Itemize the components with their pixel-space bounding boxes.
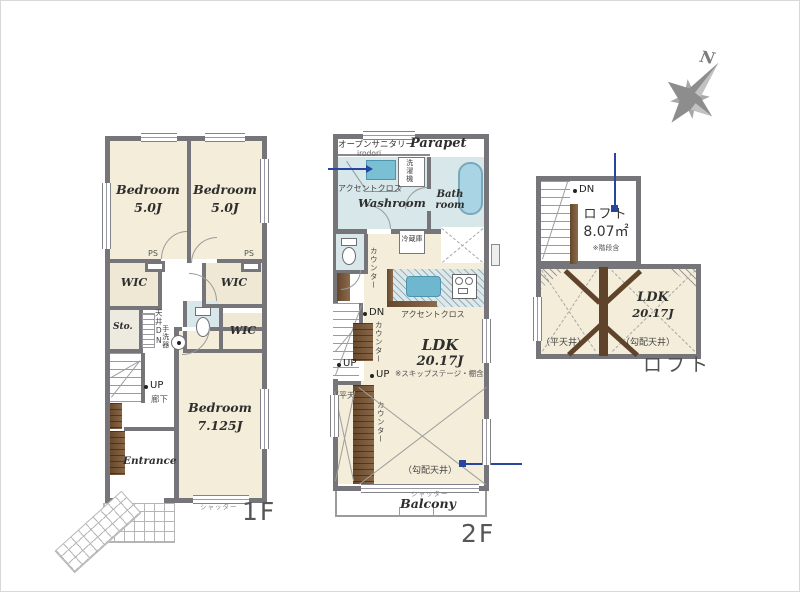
stairs-dn-label: DN <box>579 184 594 195</box>
flat-ceiling-label: （平天井） <box>541 339 586 349</box>
pipe-shaft-slot <box>148 264 162 269</box>
stairs-up-dot <box>337 363 341 367</box>
compass: N <box>643 37 743 145</box>
stairs-up-label: UP <box>343 358 356 369</box>
toilet-icon <box>342 247 356 265</box>
wic-right-lower-label: WIC <box>225 325 261 337</box>
shoe-cabinet <box>110 431 125 475</box>
hand-basin-drain <box>177 341 181 345</box>
stove-burner <box>455 277 463 285</box>
skip-stage-note: ※スキップステージ・棚含 <box>395 370 484 378</box>
annotation-dot <box>611 205 618 212</box>
wall <box>202 304 267 308</box>
kitchen-sink-icon <box>406 276 441 297</box>
bedroom-3-label: Bedroom <box>187 401 253 415</box>
pipe-shaft-slot <box>244 264 258 269</box>
ps-left-label: PS <box>148 250 158 259</box>
stair-up-dot <box>144 385 148 389</box>
loft-room-label: ロフト <box>578 208 634 222</box>
balcony-label: Balcony <box>399 497 457 511</box>
sloped-ceiling-label: （勾配天井） <box>403 467 457 477</box>
door-gap <box>427 189 431 211</box>
wood-step <box>110 403 122 429</box>
washroom-label: Washroom <box>358 197 426 210</box>
window <box>205 133 245 142</box>
toilet-icon <box>341 238 357 246</box>
counter-mid <box>353 323 373 361</box>
loft-area-label: 8.07㎡ <box>578 225 634 240</box>
wic-right-upper-label: WIC <box>213 277 255 289</box>
wall <box>338 154 430 156</box>
bedroom-3-size: 7.125J <box>187 419 253 433</box>
annotation-line <box>466 463 522 465</box>
washing-machine-label: 洗濯機 <box>405 159 413 186</box>
loft-ldk-size: 20.17J <box>627 307 679 320</box>
floorplan-sheet: Bedroom 5.0J Bedroom 5.0J PS PS WIC WIC … <box>0 0 800 592</box>
stage-up-label: UP <box>376 369 389 380</box>
floor-label-loft: ロフト <box>643 355 712 376</box>
hallway-label: 廊下 <box>151 396 168 405</box>
stairs-dn-dot <box>573 189 577 193</box>
wall <box>364 234 368 274</box>
annotation-dot <box>459 460 466 467</box>
window <box>260 159 269 223</box>
bedroom-1-size: 5.0J <box>113 201 183 215</box>
annotation-line <box>328 168 366 170</box>
bathroom-label: Bath room <box>432 189 468 211</box>
bedroom-1-label: Bedroom <box>113 183 183 197</box>
loft-note-label: ※階段含 <box>584 245 628 253</box>
stove-grill <box>458 288 468 294</box>
stairs-up-label: UP <box>150 380 163 391</box>
beam-post <box>599 267 608 356</box>
storage-label: Sto. <box>113 323 133 333</box>
ps-right-label: PS <box>244 250 254 259</box>
compass-rose-icon <box>643 37 743 145</box>
loft-ldk-label: LDK <box>629 291 677 305</box>
stairs-dn-dot <box>363 312 367 316</box>
parapet-label: Parapet <box>410 137 467 151</box>
accent-cloth-kitchen-label: アクセントクロス <box>401 311 465 320</box>
annotation-arrowhead <box>366 165 373 173</box>
stairs-dn-label: DN <box>369 307 384 318</box>
north-label: N <box>699 48 716 68</box>
window <box>141 133 177 142</box>
window <box>102 183 111 249</box>
counter-lower-label: カウンター <box>376 401 384 451</box>
wall <box>141 353 145 403</box>
sloped-ceiling-label: （勾配天井） <box>621 339 675 349</box>
wall <box>174 331 179 498</box>
bedroom-2-label: Bedroom <box>191 183 259 197</box>
window <box>533 297 542 341</box>
stage-up-dot <box>370 374 374 378</box>
shutter-label-1f: シャッター <box>200 504 238 511</box>
wic-left-label: WIC <box>113 277 155 289</box>
counter-mid-label: カウンター <box>374 321 382 369</box>
floor-label-2f: 2F <box>461 520 495 548</box>
entrance-label: Entrance <box>123 456 177 468</box>
skip-stage-steps <box>353 385 374 484</box>
toilet-icon <box>195 307 211 316</box>
kitchen-wood-edge <box>387 301 437 307</box>
window <box>330 395 339 437</box>
hand-basin-label: 手洗器 <box>161 325 169 361</box>
accent-cloth-washroom-label: アクセントクロス <box>338 185 402 194</box>
window <box>260 389 269 449</box>
bedroom-2-size: 5.0J <box>191 201 259 215</box>
ldk-label: LDK <box>409 337 471 354</box>
window <box>482 319 491 363</box>
loft-wood-edge <box>570 204 578 264</box>
stove-burner <box>465 277 473 285</box>
counter-upper-label: カウンター <box>369 247 377 295</box>
ldk-size: 20.17J <box>407 355 473 369</box>
floor-label-1f: 1F <box>242 498 276 526</box>
water-heater-icon <box>491 244 500 266</box>
window <box>363 131 415 140</box>
wall <box>124 427 179 431</box>
vanity-model-label: irodori <box>357 150 381 158</box>
refrigerator-label: 冷蔵庫 <box>399 236 425 244</box>
door-gap <box>367 229 391 234</box>
annotation-line <box>614 153 616 209</box>
window <box>482 419 491 465</box>
